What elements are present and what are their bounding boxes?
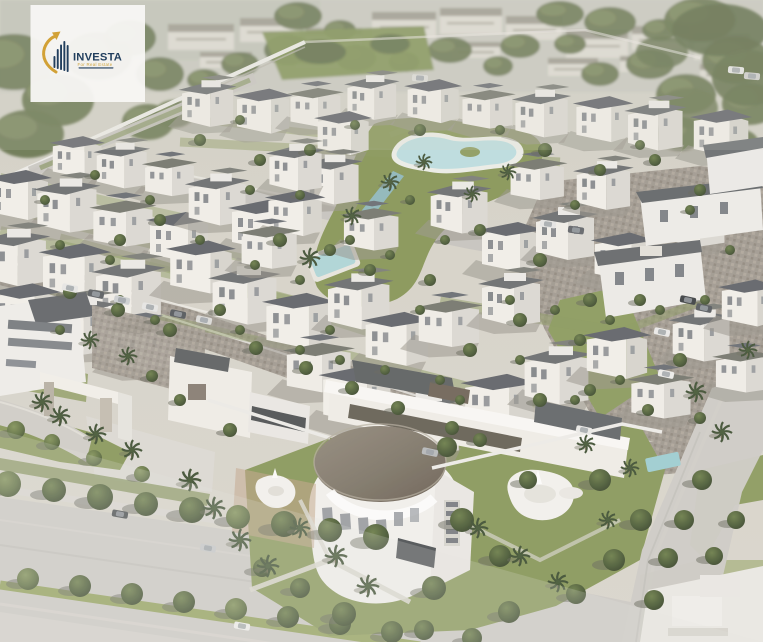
svg-text:For Real Estate: For Real Estate <box>78 62 113 67</box>
